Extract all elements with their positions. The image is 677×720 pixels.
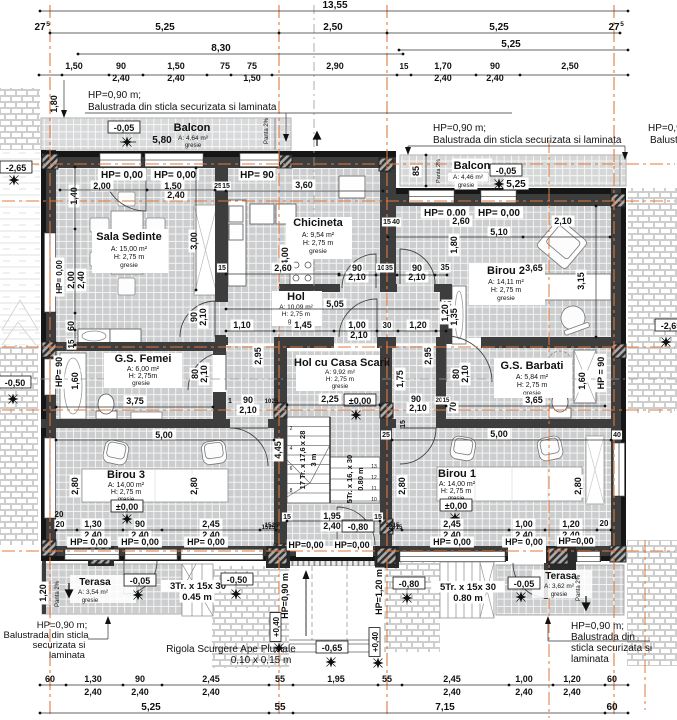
svg-text:55: 55: [382, 674, 392, 684]
svg-text:90: 90: [490, 61, 500, 71]
svg-text:A: 4,46 m²: A: 4,46 m²: [453, 174, 484, 181]
svg-text:3Tr. x 15x 30: 3Tr. x 15x 30: [170, 581, 226, 592]
svg-text:5,25: 5,25: [501, 39, 521, 50]
svg-text:1,70: 1,70: [434, 61, 452, 71]
svg-text:Birou 1: Birou 1: [438, 468, 476, 480]
svg-text:gresie: gresie: [551, 592, 568, 598]
svg-text:2,40: 2,40: [167, 73, 185, 83]
svg-text:-0,05: -0,05: [130, 576, 151, 586]
svg-text:A: 10,09 m²: A: 10,09 m²: [279, 304, 313, 311]
svg-text:1,50: 1,50: [167, 61, 185, 71]
svg-text:11: 11: [371, 486, 376, 492]
svg-text:7,15: 7,15: [435, 702, 455, 713]
svg-text:5,25: 5,25: [506, 179, 526, 190]
svg-text:HP=0,00: HP=0,00: [334, 540, 369, 550]
svg-text:2,95: 2,95: [253, 347, 263, 365]
svg-text:HP= 0,00: HP= 0,00: [154, 170, 196, 181]
svg-text:1,75: 1,75: [395, 370, 405, 388]
svg-text:2,40: 2,40: [443, 687, 461, 697]
svg-text:2,40: 2,40: [515, 687, 533, 697]
svg-text:5: 5: [46, 21, 50, 28]
svg-text:0.45 m: 0.45 m: [182, 592, 212, 603]
svg-text:A: 9,92 m²: A: 9,92 m²: [325, 369, 356, 376]
svg-text:A: 5,84 m²: A: 5,84 m²: [516, 374, 549, 381]
svg-text:H: 2,75m: H: 2,75m: [129, 373, 158, 380]
svg-text:35: 35: [385, 265, 393, 272]
svg-text:Balustr: Balustr: [650, 135, 677, 146]
svg-text:1: 1: [228, 398, 232, 405]
svg-text:27: 27: [34, 22, 46, 33]
svg-text:2,10: 2,10: [350, 330, 368, 340]
svg-text:HP=0,00: HP=0,00: [288, 540, 323, 550]
svg-text:HP = 90: HP = 90: [596, 357, 606, 390]
svg-text:Balustrada din sticla securiza: Balustrada din sticla securizata si lami…: [433, 135, 622, 146]
svg-text:2,10: 2,10: [409, 403, 427, 413]
svg-text:3,00: 3,00: [189, 232, 199, 250]
svg-text:2,40: 2,40: [434, 73, 452, 83]
svg-text:gresie: gresie: [120, 262, 138, 269]
svg-text:HP= 0,00: HP= 0,00: [101, 170, 143, 181]
svg-text:HP= 0,00: HP= 0,00: [433, 537, 471, 547]
svg-text:2,10: 2,10: [199, 365, 209, 383]
svg-text:2,90: 2,90: [326, 61, 344, 71]
svg-text:2,60: 2,60: [452, 216, 470, 226]
svg-text:1,20: 1,20: [563, 674, 581, 684]
svg-text:A: 15,00 m²: A: 15,00 m²: [111, 246, 148, 253]
svg-text:HP=0,9: HP=0,9: [648, 123, 677, 134]
svg-text:2,40: 2,40: [563, 687, 581, 697]
svg-text:15: 15: [400, 420, 407, 428]
svg-text:HP=1,20 m: HP=1,20 m: [374, 569, 384, 615]
svg-text:1,50: 1,50: [243, 73, 261, 83]
svg-text:Balustrada din sticla securiza: Balustrada din sticla securizata si lami…: [88, 102, 277, 113]
svg-text:gresie: gresie: [332, 384, 349, 390]
svg-text:30: 30: [383, 321, 392, 330]
svg-text:1,95: 1,95: [327, 674, 345, 684]
svg-text:5,25: 5,25: [141, 702, 161, 713]
svg-text:2,00: 2,00: [93, 181, 111, 191]
svg-text:1,80: 1,80: [49, 95, 59, 113]
svg-text:A: 9,54 m²: A: 9,54 m²: [302, 232, 335, 239]
svg-text:2,80: 2,80: [189, 477, 199, 495]
svg-text:5,80: 5,80: [152, 135, 172, 146]
svg-text:3,15: 3,15: [576, 272, 586, 290]
svg-text:Chicineta: Chicineta: [293, 217, 343, 229]
svg-text:-2,65: -2,65: [661, 321, 677, 331]
svg-text:1,10: 1,10: [233, 320, 251, 330]
svg-text:HP=0,90 m;: HP=0,90 m;: [433, 123, 486, 134]
svg-text:5,00: 5,00: [490, 429, 508, 439]
svg-text:0,10 x 0,15 m: 0,10 x 0,15 m: [231, 655, 292, 666]
svg-text:15: 15: [443, 398, 450, 404]
svg-text:HP= 0,00: HP= 0,00: [70, 537, 108, 547]
svg-text:17 Tr. x 17,6 x 28: 17 Tr. x 17,6 x 28: [298, 431, 307, 490]
svg-text:laminata: laminata: [49, 650, 86, 661]
svg-text:gresie: gresie: [185, 143, 202, 149]
svg-text:-0,80: -0,80: [348, 522, 369, 532]
svg-text:Hol cu Casa Scarii: Hol cu Casa Scarii: [294, 357, 390, 369]
svg-text:HP= 0,00: HP= 0,00: [55, 260, 64, 294]
svg-text:25: 25: [272, 523, 279, 529]
svg-text:Balcon: Balcon: [174, 122, 211, 134]
svg-text:HP= 0,00: HP= 0,00: [121, 537, 159, 547]
svg-text:5,25: 5,25: [155, 22, 175, 33]
svg-text:-0,50: -0,50: [5, 378, 26, 388]
svg-text:5,25: 5,25: [489, 22, 509, 33]
svg-text:Panta 2%: Panta 2%: [576, 574, 582, 601]
svg-text:0.80 m: 0.80 m: [356, 467, 365, 491]
svg-text:-0,50: -0,50: [227, 575, 248, 585]
svg-text:2,80: 2,80: [573, 477, 583, 495]
svg-text:G.S. Femei: G.S. Femei: [115, 353, 172, 365]
svg-text:2,80: 2,80: [397, 477, 407, 495]
svg-text:HP=0,90 m;: HP=0,90 m;: [88, 90, 141, 101]
svg-text:4: 4: [290, 446, 293, 452]
svg-text:±0,00: ±0,00: [445, 501, 467, 511]
svg-text:2,50: 2,50: [323, 22, 343, 33]
svg-text:1,20: 1,20: [409, 320, 427, 330]
svg-text:A: 14,11 m²: A: 14,11 m²: [488, 279, 524, 286]
svg-text:20: 20: [55, 510, 64, 519]
svg-text:+0,40: +0,40: [371, 631, 380, 652]
svg-text:5,05: 5,05: [326, 299, 344, 309]
svg-text:8: 8: [290, 488, 293, 494]
svg-text:2,40: 2,40: [76, 271, 86, 289]
svg-text:HP=0,90 m: HP=0,90 m: [280, 573, 290, 619]
svg-text:gresie: gresie: [132, 380, 150, 387]
svg-text:2,40: 2,40: [202, 687, 220, 697]
svg-text:gresie: gresie: [497, 295, 515, 302]
svg-text:5: 5: [620, 21, 624, 28]
svg-text:1,60: 1,60: [70, 372, 80, 390]
svg-text:Terasa: Terasa: [545, 571, 577, 582]
svg-text:1,95: 1,95: [323, 511, 341, 521]
svg-text:10: 10: [371, 497, 377, 503]
svg-text:-0,65: -0,65: [322, 643, 343, 653]
svg-text:2,40: 2,40: [486, 73, 504, 83]
svg-text:90: 90: [135, 674, 145, 684]
svg-text:55: 55: [275, 674, 285, 684]
svg-text:3 m: 3 m: [309, 453, 318, 466]
svg-text:25: 25: [382, 432, 390, 439]
svg-text:5,00: 5,00: [155, 430, 173, 440]
svg-text:40: 40: [392, 219, 400, 226]
svg-text:H: 2,75 m: H: 2,75 m: [303, 240, 334, 247]
svg-text:35: 35: [441, 263, 450, 272]
svg-text:15: 15: [393, 523, 400, 529]
svg-text:HP= 0,00: HP= 0,00: [478, 208, 520, 219]
svg-text:55: 55: [274, 702, 286, 713]
svg-text:-2,65: -2,65: [6, 163, 27, 173]
svg-text:1,30: 1,30: [84, 674, 102, 684]
svg-text:2: 2: [290, 426, 293, 432]
svg-text:2,80: 2,80: [70, 477, 80, 495]
svg-text:60: 60: [606, 702, 618, 713]
svg-text:90: 90: [116, 61, 126, 71]
svg-text:2,45: 2,45: [202, 674, 220, 684]
svg-text:H: 2,75 m: H: 2,75 m: [441, 488, 472, 495]
svg-text:Balcon: Balcon: [454, 160, 491, 172]
svg-text:2,40: 2,40: [84, 687, 102, 697]
svg-text:1,00: 1,00: [515, 519, 533, 529]
svg-text:2,10: 2,10: [198, 308, 208, 326]
svg-text:H: 2,75 m: H: 2,75 m: [111, 489, 142, 496]
svg-text:A: 6,00 m²: A: 6,00 m²: [127, 366, 160, 373]
svg-text:-0,80: -0,80: [399, 579, 420, 589]
svg-text:6: 6: [290, 466, 293, 472]
svg-text:2,60: 2,60: [274, 263, 292, 273]
svg-text:H: 2,75 m: H: 2,75 m: [326, 376, 354, 383]
svg-text:HP= 0,00: HP= 0,00: [505, 537, 543, 547]
svg-text:2,45: 2,45: [202, 519, 220, 529]
svg-text:15: 15: [218, 265, 226, 272]
svg-text:HP=0,90 m;: HP=0,90 m;: [571, 621, 624, 632]
svg-text:3,75: 3,75: [126, 396, 144, 406]
svg-text:13: 13: [371, 464, 377, 470]
svg-text:-0,05: -0,05: [496, 166, 517, 176]
svg-text:A: 14,00 m²: A: 14,00 m²: [439, 481, 476, 488]
svg-text:A: 3,62 m²: A: 3,62 m²: [544, 583, 575, 590]
svg-text:2,00: 2,00: [66, 271, 76, 289]
svg-text:15: 15: [222, 183, 230, 190]
svg-text:1,00: 1,00: [515, 674, 533, 684]
svg-text:gresie: gresie: [458, 183, 475, 189]
svg-text:1,80: 1,80: [449, 236, 459, 254]
svg-text:G.S. Barbati: G.S. Barbati: [501, 360, 564, 372]
svg-text:75: 75: [220, 61, 230, 71]
svg-text:90: 90: [243, 395, 253, 405]
svg-text:±0,00: ±0,00: [116, 502, 138, 512]
svg-text:1,30: 1,30: [84, 519, 102, 529]
svg-text:20: 20: [600, 519, 609, 528]
svg-text:1,00: 1,00: [348, 320, 366, 330]
svg-text:12: 12: [371, 475, 377, 481]
svg-text:laminata: laminata: [571, 654, 609, 665]
svg-text:15: 15: [383, 219, 391, 226]
svg-text:2,10: 2,10: [348, 272, 366, 282]
svg-text:Birou 2: Birou 2: [487, 265, 525, 277]
svg-text:gresie: gresie: [82, 598, 99, 604]
svg-text:±0,00: ±0,00: [349, 396, 371, 406]
svg-text:2,45: 2,45: [443, 519, 461, 529]
svg-text:5Tr. x 15x 30: 5Tr. x 15x 30: [440, 582, 496, 593]
svg-text:13,55: 13,55: [322, 0, 347, 11]
svg-text:1,20: 1,20: [38, 584, 48, 602]
svg-text:5,10: 5,10: [490, 227, 508, 237]
svg-text:2,10: 2,10: [239, 405, 257, 415]
svg-text:2,40: 2,40: [167, 190, 185, 200]
svg-text:3,65: 3,65: [525, 263, 543, 273]
svg-text:HP= 90: HP= 90: [240, 170, 274, 181]
svg-text:75: 75: [247, 61, 257, 71]
svg-text:2,25: 2,25: [321, 394, 339, 404]
svg-text:Panta 2%: Panta 2%: [55, 580, 61, 607]
svg-text:-0,05: -0,05: [114, 123, 135, 133]
svg-text:HP=0,00: HP=0,00: [558, 536, 593, 546]
svg-text:+0,40: +0,40: [272, 616, 281, 637]
svg-text:gresie: gresie: [309, 248, 327, 255]
svg-text:H: 2,75 m: H: 2,75 m: [282, 311, 310, 318]
svg-text:1,60: 1,60: [577, 372, 587, 390]
svg-text:8,30: 8,30: [211, 43, 231, 54]
svg-text:25: 25: [272, 399, 279, 405]
svg-text:10: 10: [377, 265, 385, 272]
svg-text:Sala Sedinte: Sala Sedinte: [96, 231, 161, 243]
svg-text:2,40: 2,40: [112, 73, 130, 83]
svg-text:2,45: 2,45: [443, 674, 461, 684]
svg-text:2,40: 2,40: [131, 687, 149, 697]
svg-text:15: 15: [400, 62, 409, 71]
svg-text:90: 90: [135, 519, 145, 529]
svg-text:2,10: 2,10: [460, 365, 470, 383]
svg-text:2,10: 2,10: [408, 272, 426, 282]
svg-text:27: 27: [608, 22, 620, 33]
svg-text:2,40: 2,40: [323, 521, 341, 531]
svg-text:Panta 2%: Panta 2%: [264, 117, 270, 144]
svg-text:85: 85: [411, 166, 421, 176]
svg-text:3,60: 3,60: [295, 180, 313, 190]
svg-text:4,45: 4,45: [273, 441, 283, 459]
svg-text:HP= 0,00: HP= 0,00: [187, 537, 225, 547]
svg-text:0.80 m: 0.80 m: [453, 593, 483, 604]
svg-text:Hol: Hol: [287, 291, 305, 303]
svg-text:HP= 90: HP= 90: [54, 357, 64, 387]
svg-text:H: 2,75 m: H: 2,75 m: [491, 287, 522, 294]
svg-text:20: 20: [56, 520, 65, 529]
svg-text:A: 3,54 m²: A: 3,54 m²: [78, 589, 109, 596]
svg-text:2,10: 2,10: [554, 216, 572, 226]
svg-text:A: 14,00 m²: A: 14,00 m²: [108, 482, 145, 489]
svg-text:Panta 2%: Panta 2%: [436, 159, 442, 183]
svg-text:1,20: 1,20: [562, 519, 580, 529]
svg-text:60: 60: [607, 674, 617, 684]
svg-text:40: 40: [613, 432, 621, 439]
svg-text:60: 60: [45, 674, 55, 684]
svg-text:Terasa: Terasa: [79, 577, 111, 588]
svg-text:1,50: 1,50: [65, 61, 83, 71]
svg-text:2,95: 2,95: [423, 347, 433, 365]
svg-text:1,20: 1,20: [440, 304, 450, 322]
svg-text:2,50: 2,50: [561, 61, 579, 71]
svg-text:5Tr. x 16, x 30: 5Tr. x 16, x 30: [345, 455, 354, 503]
svg-text:H: 2,75 m: H: 2,75 m: [517, 382, 548, 389]
svg-text:H: 2,75 m: H: 2,75 m: [114, 254, 145, 261]
svg-text:Birou 3: Birou 3: [107, 469, 145, 481]
svg-text:A: 4,64 m²: A: 4,64 m²: [178, 135, 209, 142]
svg-text:sticla securizata si: sticla securizata si: [571, 643, 652, 654]
svg-text:Rigola Scurgere Ape Pluviale: Rigola Scurgere Ape Pluviale: [166, 644, 296, 655]
svg-text:-0,05: -0,05: [514, 579, 535, 589]
svg-text:3,65: 3,65: [525, 395, 543, 405]
svg-text:1,45: 1,45: [294, 320, 312, 330]
